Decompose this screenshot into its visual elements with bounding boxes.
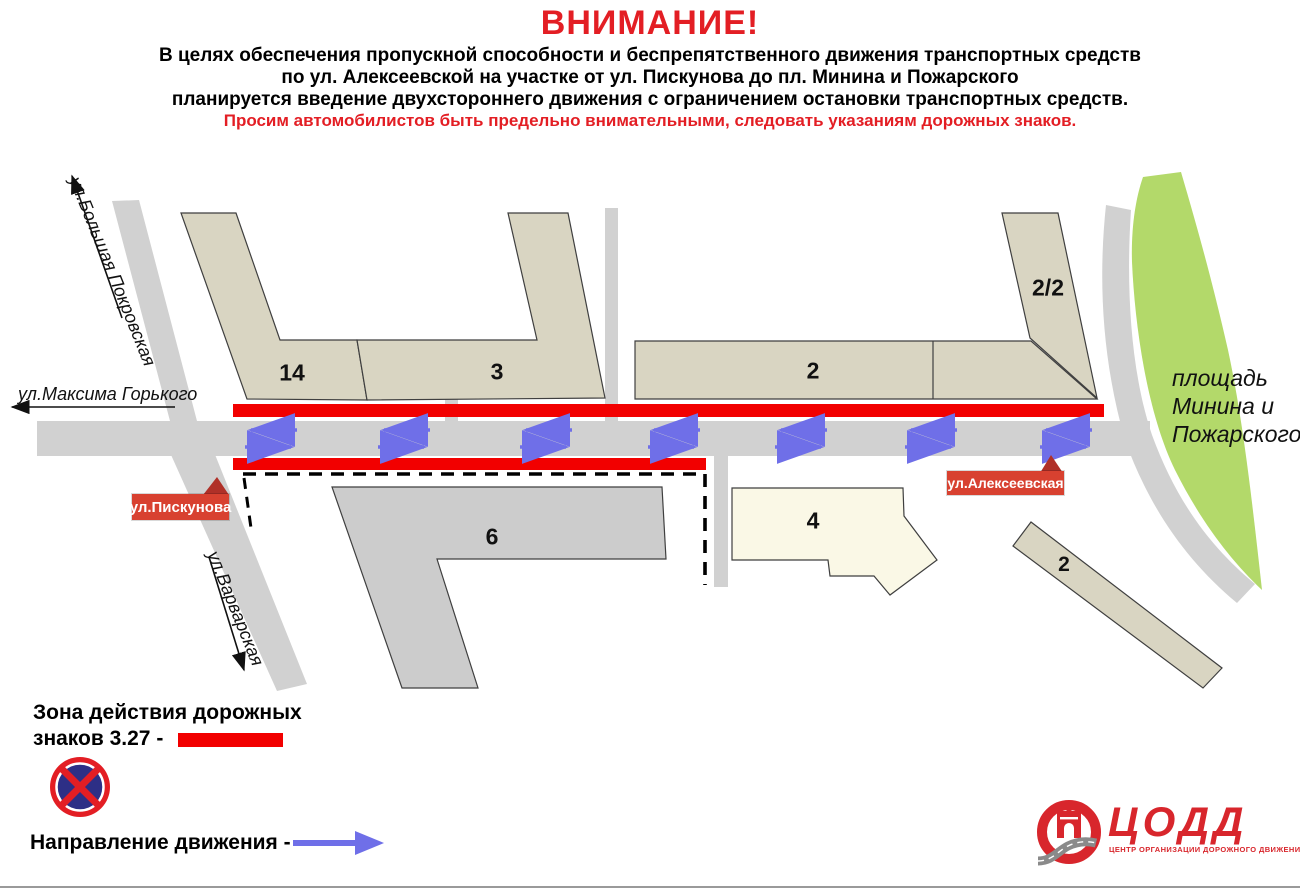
square-label-line2: Минина и: [1172, 392, 1300, 420]
street-label-maksima-gorkogo: ул.Максима Горького: [18, 384, 197, 405]
street-sign-alekseevskaya: ул.Алексеевская: [947, 471, 1064, 495]
building-label-2: 2: [807, 358, 820, 385]
square-label: площадь Минина и Пожарского: [1172, 364, 1300, 448]
road-stub-3: [714, 456, 728, 587]
building-label-3: 3: [491, 359, 504, 386]
no-stopping-sign-icon: [50, 757, 110, 817]
legend-direction-arrow: [293, 831, 384, 855]
building-4: [732, 488, 937, 595]
building-label-14: 14: [279, 360, 305, 387]
building-label-2-small: 2: [1058, 553, 1070, 577]
tsodd-logo-tagline: ЦЕНТР ОРГАНИЗАЦИИ ДОРОЖНОГО ДВИЖЕНИЯ: [1109, 845, 1300, 854]
zone-bar-south: [233, 458, 706, 470]
road-stub-2: [605, 208, 618, 423]
tsodd-logo-emblem: [1038, 805, 1096, 861]
building-2: [635, 341, 1097, 399]
tsodd-logo-name: ЦОДД: [1108, 798, 1247, 846]
building-label-2-2: 2/2: [1032, 275, 1064, 302]
legend-direction-label: Направление движения -: [30, 831, 291, 855]
building-label-6: 6: [486, 524, 499, 551]
square-label-line1: площадь: [1172, 364, 1300, 392]
building-14: [181, 213, 367, 400]
road-varvarskaya: [163, 437, 307, 691]
building-6: [332, 487, 666, 688]
building-label-4: 4: [807, 508, 820, 535]
building-3: [357, 213, 605, 400]
legend-zone-line2: знаков 3.27 -: [33, 727, 163, 751]
legend-zone-line1: Зона действия дорожных: [33, 701, 302, 725]
street-sign-piskunova: ул.Пискунова: [132, 494, 229, 520]
street-map: [0, 0, 1300, 888]
zone-bar-north: [233, 404, 1104, 417]
legend-zone-bar: [178, 733, 283, 747]
traffic-notice-poster: ВНИМАНИЕ! В целях обеспечения пропускной…: [0, 0, 1300, 888]
square-label-line3: Пожарского: [1172, 420, 1300, 448]
